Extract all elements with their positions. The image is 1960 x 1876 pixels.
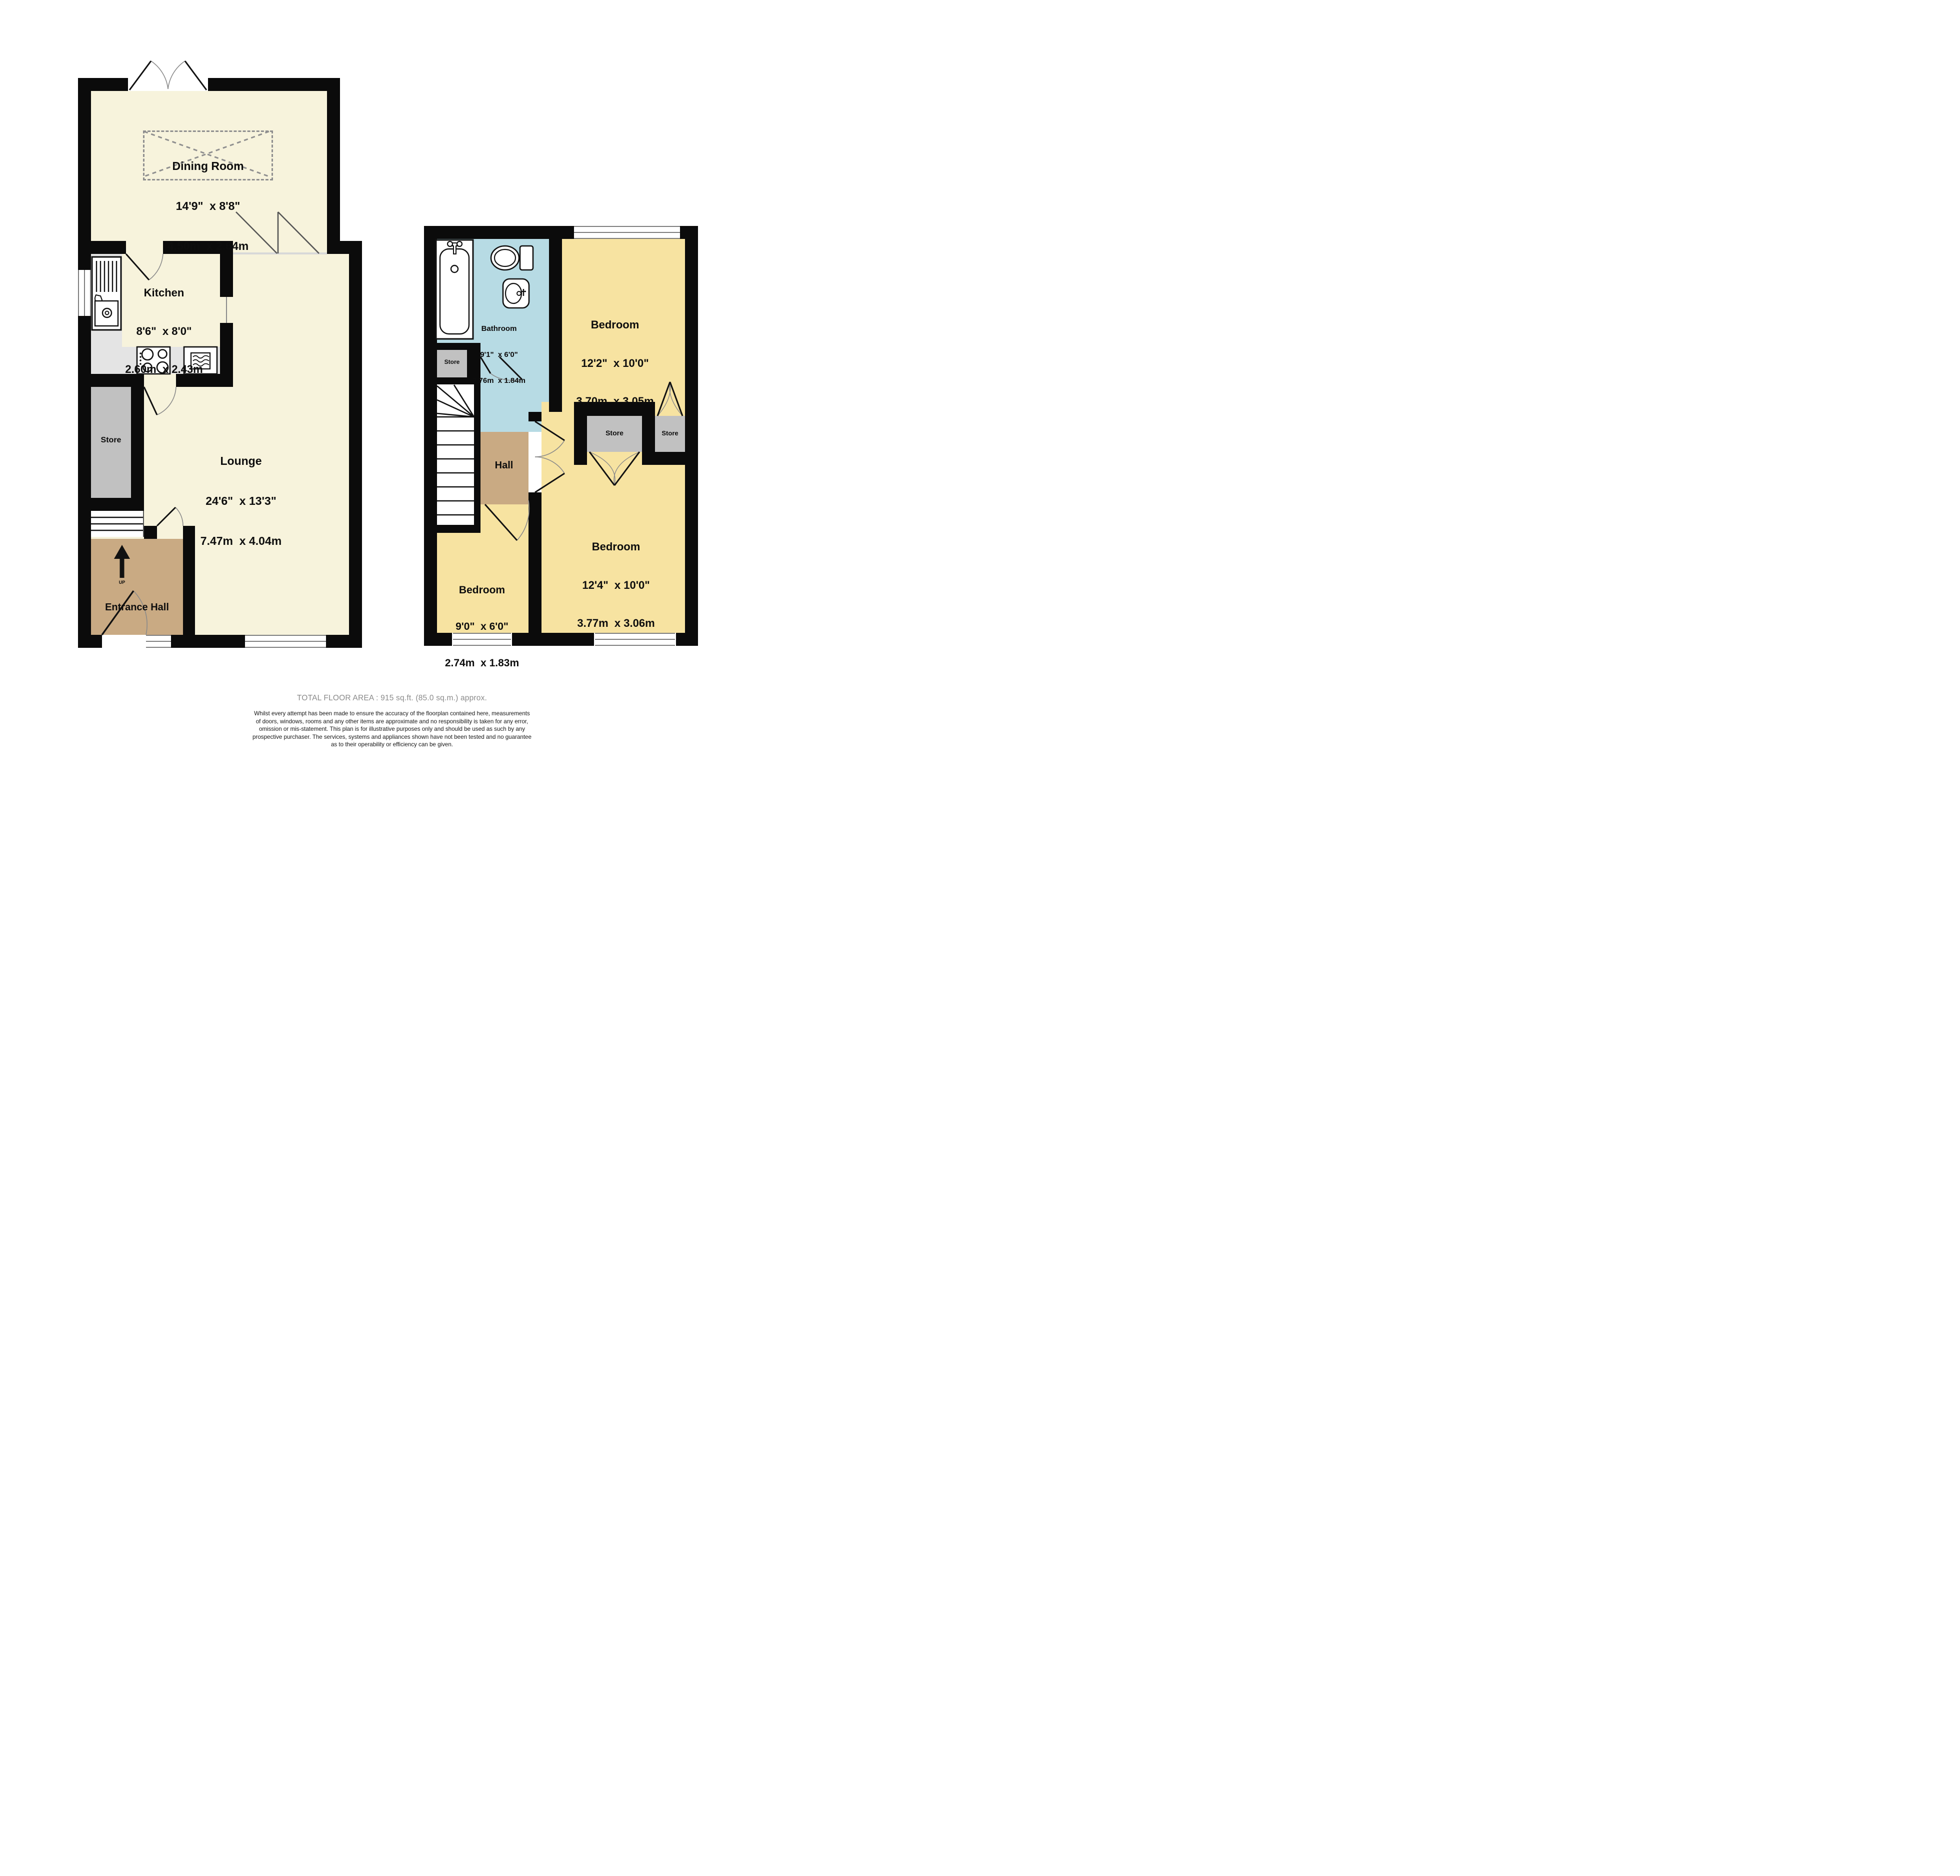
kitchen-label: Kitchen 8'6" x 8'0" 2.60m x 2.43m	[99, 261, 229, 401]
footer: TOTAL FLOOR AREA : 915 sq.ft. (85.0 sq.m…	[0, 694, 784, 750]
bedroom-top-window	[574, 226, 680, 239]
wall-segment	[78, 498, 144, 511]
room-dim-imperial: 8'6" x 8'0"	[99, 325, 229, 338]
landing-store-label: Store	[432, 359, 472, 366]
first-floor-plan: Bathroom 9'1" x 6'0" 2.76m x 1.84m Bedro…	[424, 226, 698, 646]
up-label: UP	[112, 580, 132, 585]
bedroom-bottom-left-label: Bedroom 9'0" x 6'0" 2.74m x 1.83m	[427, 560, 537, 694]
room-name: Bedroom	[427, 584, 537, 596]
room-dim-imperial: 12'4" x 10'0"	[541, 579, 691, 592]
wall-segment	[171, 635, 245, 648]
kitchen-window	[78, 270, 91, 316]
room-name: Dining Room	[133, 159, 283, 173]
room-name: Bedroom	[541, 540, 691, 553]
floorplan-page: Dining Room 14'9" x 8'8" 4.50m x 2.64m K…	[0, 0, 784, 750]
room-dim-imperial: 24'6" x 13'3"	[166, 494, 316, 508]
bedroom-top-label: Bedroom 12'2" x 10'0" 3.70m x 3.05m	[540, 293, 690, 433]
stairs-area	[437, 384, 474, 525]
room-dim-metric: 2.60m x 2.43m	[99, 363, 229, 376]
disclaimer-line: as to their operability or efficiency ca…	[0, 741, 784, 749]
room-dim-imperial: 9'0" x 6'0"	[427, 621, 537, 633]
room-dim-metric: 4.50m x 2.64m	[133, 239, 283, 253]
room-name: Kitchen	[99, 286, 229, 299]
wall-segment	[91, 241, 126, 254]
entrance-side-window	[146, 635, 171, 648]
disclaimer-line: prospective purchaser. The services, sys…	[0, 733, 784, 741]
dining-room-label: Dining Room 14'9" x 8'8" 4.50m x 2.64m	[133, 133, 283, 279]
room-dim-metric: 3.77m x 3.06m	[541, 617, 691, 630]
entrance-hall-label: Entrance Hall	[92, 602, 182, 613]
ground-floor-plan: Dining Room 14'9" x 8'8" 4.50m x 2.64m K…	[78, 78, 362, 648]
wall-segment	[131, 387, 144, 511]
wall-segment	[78, 78, 91, 270]
wall-segment	[78, 316, 91, 648]
wall-segment	[327, 78, 340, 254]
hall-label: Hall	[479, 460, 529, 471]
bedroom-bottom-left-top-strip	[480, 504, 528, 533]
credit-line: Made with Metropix ©2025	[0, 750, 784, 750]
lounge-window	[245, 635, 326, 648]
wall-segment	[326, 635, 362, 648]
room-name: Bathroom	[451, 324, 546, 333]
room-dim-imperial: 12'2" x 10'0"	[540, 357, 690, 370]
stairs-area	[91, 511, 143, 537]
wall-segment	[437, 525, 480, 533]
room-dim-metric: 2.74m x 1.83m	[427, 657, 537, 669]
wall-segment	[208, 78, 340, 91]
lounge-label: Lounge 24'6" x 13'3" 7.47m x 4.04m	[166, 428, 316, 574]
room-dim-metric: 7.47m x 4.04m	[166, 534, 316, 548]
closet-right-store-label: Store	[655, 429, 685, 437]
room-name: Bedroom	[540, 318, 690, 331]
wall-segment	[144, 526, 157, 539]
disclaimer: Whilst every attempt has been made to en…	[0, 710, 784, 749]
disclaimer-line: omission or mis-statement. This plan is …	[0, 725, 784, 733]
bedroom-bottom-right-label: Bedroom 12'4" x 10'0" 3.77m x 3.06m	[541, 515, 691, 655]
store-label: Store	[86, 436, 136, 445]
room-dim-imperial: 9'1" x 6'0"	[451, 350, 546, 359]
bathroom-label: Bathroom 9'1" x 6'0" 2.76m x 1.84m	[451, 307, 546, 402]
wall-segment	[78, 635, 102, 648]
room-dim-imperial: 14'9" x 8'8"	[133, 199, 283, 213]
room-dim-metric: 2.76m x 1.84m	[451, 376, 546, 385]
wall-segment	[349, 241, 362, 648]
french-doors-icon	[129, 61, 206, 90]
disclaimer-line: Whilst every attempt has been made to en…	[0, 710, 784, 718]
total-floor-area: TOTAL FLOOR AREA : 915 sq.ft. (85.0 sq.m…	[0, 694, 784, 703]
wall-segment	[642, 452, 685, 465]
room-dim-metric: 3.70m x 3.05m	[540, 395, 690, 408]
disclaimer-line: of doors, windows, rooms and any other i…	[0, 718, 784, 726]
closet-left-store-label: Store	[589, 429, 639, 437]
wall-segment	[474, 384, 480, 533]
room-name: Lounge	[166, 454, 316, 468]
